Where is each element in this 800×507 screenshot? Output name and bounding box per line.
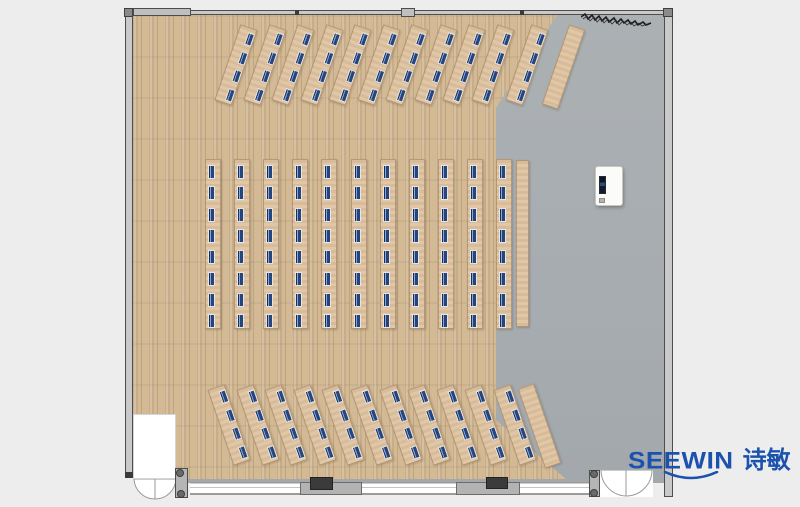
seat-marker	[397, 89, 405, 101]
seat-marker	[363, 391, 371, 403]
seat-marker	[318, 427, 326, 439]
seat-marker	[267, 315, 272, 327]
wall-left	[125, 8, 133, 478]
seat-marker	[238, 315, 243, 327]
seat-marker	[404, 70, 412, 82]
desk	[380, 159, 396, 329]
seat-marker	[506, 391, 514, 403]
glass-wall-bottom	[190, 482, 590, 495]
desk	[234, 159, 250, 329]
seat-marker	[325, 273, 330, 285]
brand-logo: SEEWIN 诗敏	[628, 447, 798, 489]
seat-marker	[461, 70, 469, 82]
desk	[205, 159, 221, 329]
seat-marker	[384, 315, 389, 327]
wall-block-2	[486, 477, 508, 489]
seat-marker	[471, 230, 476, 242]
seat-marker	[471, 315, 476, 327]
seat-marker	[355, 209, 360, 221]
seat-marker	[340, 89, 348, 101]
seat-marker	[355, 315, 360, 327]
seat-marker	[502, 34, 510, 46]
seat-marker	[233, 70, 241, 82]
seat-marker	[455, 409, 463, 421]
podium-tray	[599, 198, 605, 203]
seat-marker	[467, 52, 475, 64]
seat-marker	[296, 52, 304, 64]
seat-marker	[209, 294, 214, 306]
seat-marker	[413, 315, 418, 327]
seat-marker	[442, 230, 447, 242]
seat-marker	[376, 427, 384, 439]
seat-marker	[432, 70, 440, 82]
seat-marker	[525, 446, 533, 458]
seat-marker	[413, 209, 418, 221]
seat-marker	[353, 446, 361, 458]
seat-marker	[268, 52, 276, 64]
podium-screen	[599, 176, 606, 194]
seat-marker	[331, 34, 339, 46]
seat-marker	[375, 70, 383, 82]
seat-marker	[355, 230, 360, 242]
seat-marker	[233, 427, 241, 439]
desk	[263, 159, 279, 329]
seat-marker	[238, 166, 243, 178]
seat-marker	[471, 294, 476, 306]
seat-marker	[296, 315, 301, 327]
seat-marker	[445, 34, 453, 46]
seat-marker	[353, 52, 361, 64]
seat-marker	[325, 294, 330, 306]
seat-marker	[355, 251, 360, 263]
seat-marker	[296, 230, 301, 242]
seat-marker	[489, 70, 497, 82]
side-table	[516, 160, 529, 327]
seat-marker	[442, 273, 447, 285]
seat-marker	[267, 166, 272, 178]
door-post-dot-2	[177, 490, 185, 498]
wall-tick-2	[520, 10, 524, 15]
seat-marker	[384, 187, 389, 199]
seat-marker	[413, 251, 418, 263]
seat-marker	[325, 52, 333, 64]
seat-marker	[238, 187, 243, 199]
seat-marker	[413, 273, 418, 285]
seat-marker	[512, 409, 520, 421]
curtain-hatch-icon	[581, 13, 653, 27]
seat-marker	[302, 34, 310, 46]
seat-marker	[209, 315, 214, 327]
seat-marker	[283, 89, 291, 101]
seat-marker	[471, 209, 476, 221]
seat-marker	[261, 427, 269, 439]
seat-marker	[290, 70, 298, 82]
seat-marker	[471, 273, 476, 285]
seat-marker	[413, 166, 418, 178]
seat-marker	[209, 251, 214, 263]
seat-marker	[238, 230, 243, 242]
seat-marker	[238, 273, 243, 285]
seat-marker	[220, 391, 228, 403]
seat-marker	[325, 251, 330, 263]
desk	[467, 159, 483, 329]
seat-marker	[442, 251, 447, 263]
seat-marker	[306, 391, 314, 403]
seat-marker	[388, 34, 396, 46]
brand-logo-chinese: 诗敏	[743, 447, 791, 474]
seat-marker	[255, 89, 263, 101]
seat-marker	[267, 209, 272, 221]
seat-marker	[267, 273, 272, 285]
seat-marker	[468, 446, 476, 458]
seat-marker	[384, 209, 389, 221]
door-post-dot-1	[176, 469, 184, 477]
seat-marker	[296, 187, 301, 199]
seat-marker	[483, 89, 491, 101]
wall-top-mullion	[401, 8, 415, 17]
seat-marker	[433, 427, 441, 439]
seat-marker	[238, 251, 243, 263]
seat-marker	[209, 230, 214, 242]
seat-marker	[398, 409, 406, 421]
brand-logo-latin: SEEWIN	[628, 448, 734, 472]
seat-marker	[355, 294, 360, 306]
seat-marker	[426, 89, 434, 101]
seat-marker	[442, 209, 447, 221]
seat-marker	[312, 409, 320, 421]
seat-marker	[382, 446, 390, 458]
seat-marker	[209, 187, 214, 199]
seat-marker	[496, 52, 504, 64]
seat-marker	[439, 52, 447, 64]
seat-marker	[355, 187, 360, 199]
wall-tick-1	[295, 10, 299, 15]
seat-marker	[384, 273, 389, 285]
seat-marker	[500, 273, 505, 285]
seat-marker	[439, 446, 447, 458]
seat-marker	[267, 294, 272, 306]
seat-marker	[500, 251, 505, 263]
seat-marker	[410, 52, 418, 64]
seat-marker	[473, 34, 481, 46]
seat-marker	[209, 209, 214, 221]
seat-marker	[530, 52, 538, 64]
door-alcove-bottom-left	[133, 414, 176, 479]
seat-marker	[267, 446, 275, 458]
seat-marker	[496, 446, 504, 458]
seat-marker	[318, 70, 326, 82]
seat-marker	[454, 89, 462, 101]
seat-marker	[325, 446, 333, 458]
seat-marker	[325, 209, 330, 221]
podium	[595, 166, 623, 206]
seat-marker	[490, 427, 498, 439]
seat-marker	[442, 315, 447, 327]
desk	[321, 159, 337, 329]
seat-marker	[296, 209, 301, 221]
seat-marker	[471, 187, 476, 199]
seat-marker	[325, 166, 330, 178]
seat-marker	[384, 294, 389, 306]
floorplan-canvas: SEEWIN 诗敏	[0, 0, 800, 507]
seat-marker	[391, 391, 399, 403]
seat-marker	[274, 34, 282, 46]
wall-left-endcap	[125, 472, 133, 478]
seat-marker	[341, 409, 349, 421]
seat-marker	[384, 166, 389, 178]
seat-marker	[426, 409, 434, 421]
seat-marker	[239, 52, 247, 64]
seat-marker	[413, 294, 418, 306]
seat-marker	[517, 89, 525, 101]
seat-marker	[296, 166, 301, 178]
side-table	[541, 25, 584, 110]
seat-marker	[239, 446, 247, 458]
seat-marker	[500, 294, 505, 306]
seat-marker	[347, 427, 355, 439]
seat-marker	[477, 391, 485, 403]
door-swing-bottom-left	[133, 479, 177, 501]
door-post-dot-3	[590, 470, 598, 478]
wall-top-left-segment	[133, 8, 191, 16]
seat-marker	[369, 409, 377, 421]
seat-marker	[536, 34, 544, 46]
seat-marker	[267, 230, 272, 242]
desk	[496, 159, 512, 329]
seat-marker	[226, 89, 234, 101]
seat-marker	[359, 34, 367, 46]
seat-marker	[384, 230, 389, 242]
seat-marker	[267, 251, 272, 263]
seat-marker	[325, 315, 330, 327]
desk	[409, 159, 425, 329]
seat-marker	[519, 427, 527, 439]
seat-marker	[500, 230, 505, 242]
seat-marker	[347, 70, 355, 82]
seat-marker	[461, 427, 469, 439]
seat-marker	[500, 315, 505, 327]
seat-marker	[312, 89, 320, 101]
seat-marker	[449, 391, 457, 403]
seat-marker	[500, 166, 505, 178]
seat-marker	[267, 187, 272, 199]
wall-block-1	[310, 477, 333, 490]
seat-marker	[296, 446, 304, 458]
desk	[438, 159, 454, 329]
seat-marker	[471, 166, 476, 178]
seat-marker	[325, 187, 330, 199]
seat-marker	[355, 273, 360, 285]
seat-marker	[325, 230, 330, 242]
seat-marker	[413, 230, 418, 242]
seat-marker	[248, 391, 256, 403]
seat-marker	[416, 34, 424, 46]
seat-marker	[238, 294, 243, 306]
seat-marker	[384, 251, 389, 263]
seat-marker	[382, 52, 390, 64]
seat-marker	[296, 251, 301, 263]
desk	[292, 159, 308, 329]
seat-marker	[245, 34, 253, 46]
seat-marker	[355, 166, 360, 178]
seat-marker	[369, 89, 377, 101]
seat-marker	[471, 251, 476, 263]
brand-smile-icon	[662, 471, 720, 483]
seat-marker	[296, 273, 301, 285]
seat-marker	[238, 209, 243, 221]
seat-marker	[290, 427, 298, 439]
seat-marker	[442, 166, 447, 178]
column-top-right	[663, 8, 673, 17]
seat-marker	[283, 409, 291, 421]
seat-marker	[209, 166, 214, 178]
seat-marker	[261, 70, 269, 82]
seat-marker	[334, 391, 342, 403]
seat-marker	[500, 209, 505, 221]
seat-marker	[420, 391, 428, 403]
furniture-layer	[0, 0, 800, 507]
seat-marker	[404, 427, 412, 439]
seat-marker	[226, 409, 234, 421]
desk	[351, 159, 367, 329]
seat-marker	[442, 187, 447, 199]
seat-marker	[209, 273, 214, 285]
seat-marker	[442, 294, 447, 306]
seat-marker	[484, 409, 492, 421]
seat-marker	[524, 70, 532, 82]
seat-marker	[500, 187, 505, 199]
wall-right	[664, 8, 673, 497]
seat-marker	[255, 409, 263, 421]
seat-marker	[296, 294, 301, 306]
seat-marker	[277, 391, 285, 403]
seat-marker	[410, 446, 418, 458]
seat-marker	[413, 187, 418, 199]
door-post-dot-4	[590, 489, 598, 497]
column-top-left	[124, 8, 133, 17]
